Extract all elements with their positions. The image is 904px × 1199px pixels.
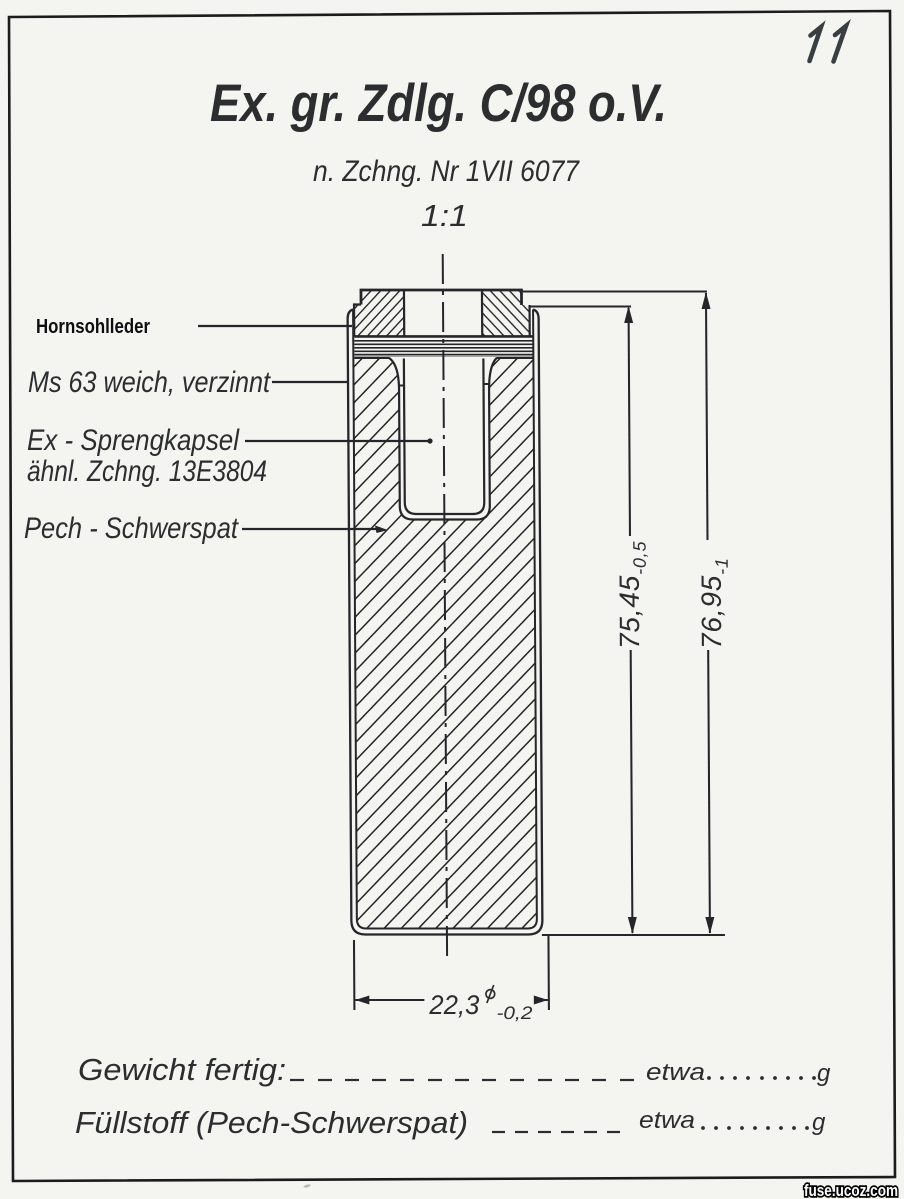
svg-text:Hornsohlleder: Hornsohlleder xyxy=(36,315,150,338)
svg-text:n. Zchng. Nr 1VII 6077: n. Zchng. Nr 1VII 6077 xyxy=(313,155,580,188)
svg-text:Pech - Schwerspat: Pech - Schwerspat xyxy=(24,512,239,545)
svg-text:g: g xyxy=(812,1109,826,1136)
svg-text:Ex - Sprengkapsel: Ex - Sprengkapsel xyxy=(27,424,240,457)
svg-text:Gewicht fertig:: Gewicht fertig: xyxy=(78,1052,286,1087)
svg-text:g: g xyxy=(817,1060,831,1087)
svg-text:Füllstoff (Pech-Schwerspat): Füllstoff (Pech-Schwerspat) xyxy=(75,1105,468,1140)
svg-text:etwa: etwa xyxy=(646,1059,705,1086)
svg-text:Ex. gr. Zdlg. C/98 o.V.: Ex. gr. Zdlg. C/98 o.V. xyxy=(210,74,667,133)
svg-text:Ms 63 weich, verzinnt: Ms 63 weich, verzinnt xyxy=(28,366,271,399)
svg-text:22,3: 22,3 xyxy=(428,990,479,1020)
svg-text:ähnl. Zchng. 13E3804: ähnl. Zchng. 13E3804 xyxy=(27,455,267,488)
svg-text:fuse.ucoz.com: fuse.ucoz.com xyxy=(804,1182,898,1199)
svg-text:etwa: etwa xyxy=(639,1107,695,1134)
svg-text:-0,2: -0,2 xyxy=(496,1003,532,1023)
svg-text:1:1: 1:1 xyxy=(421,198,468,233)
